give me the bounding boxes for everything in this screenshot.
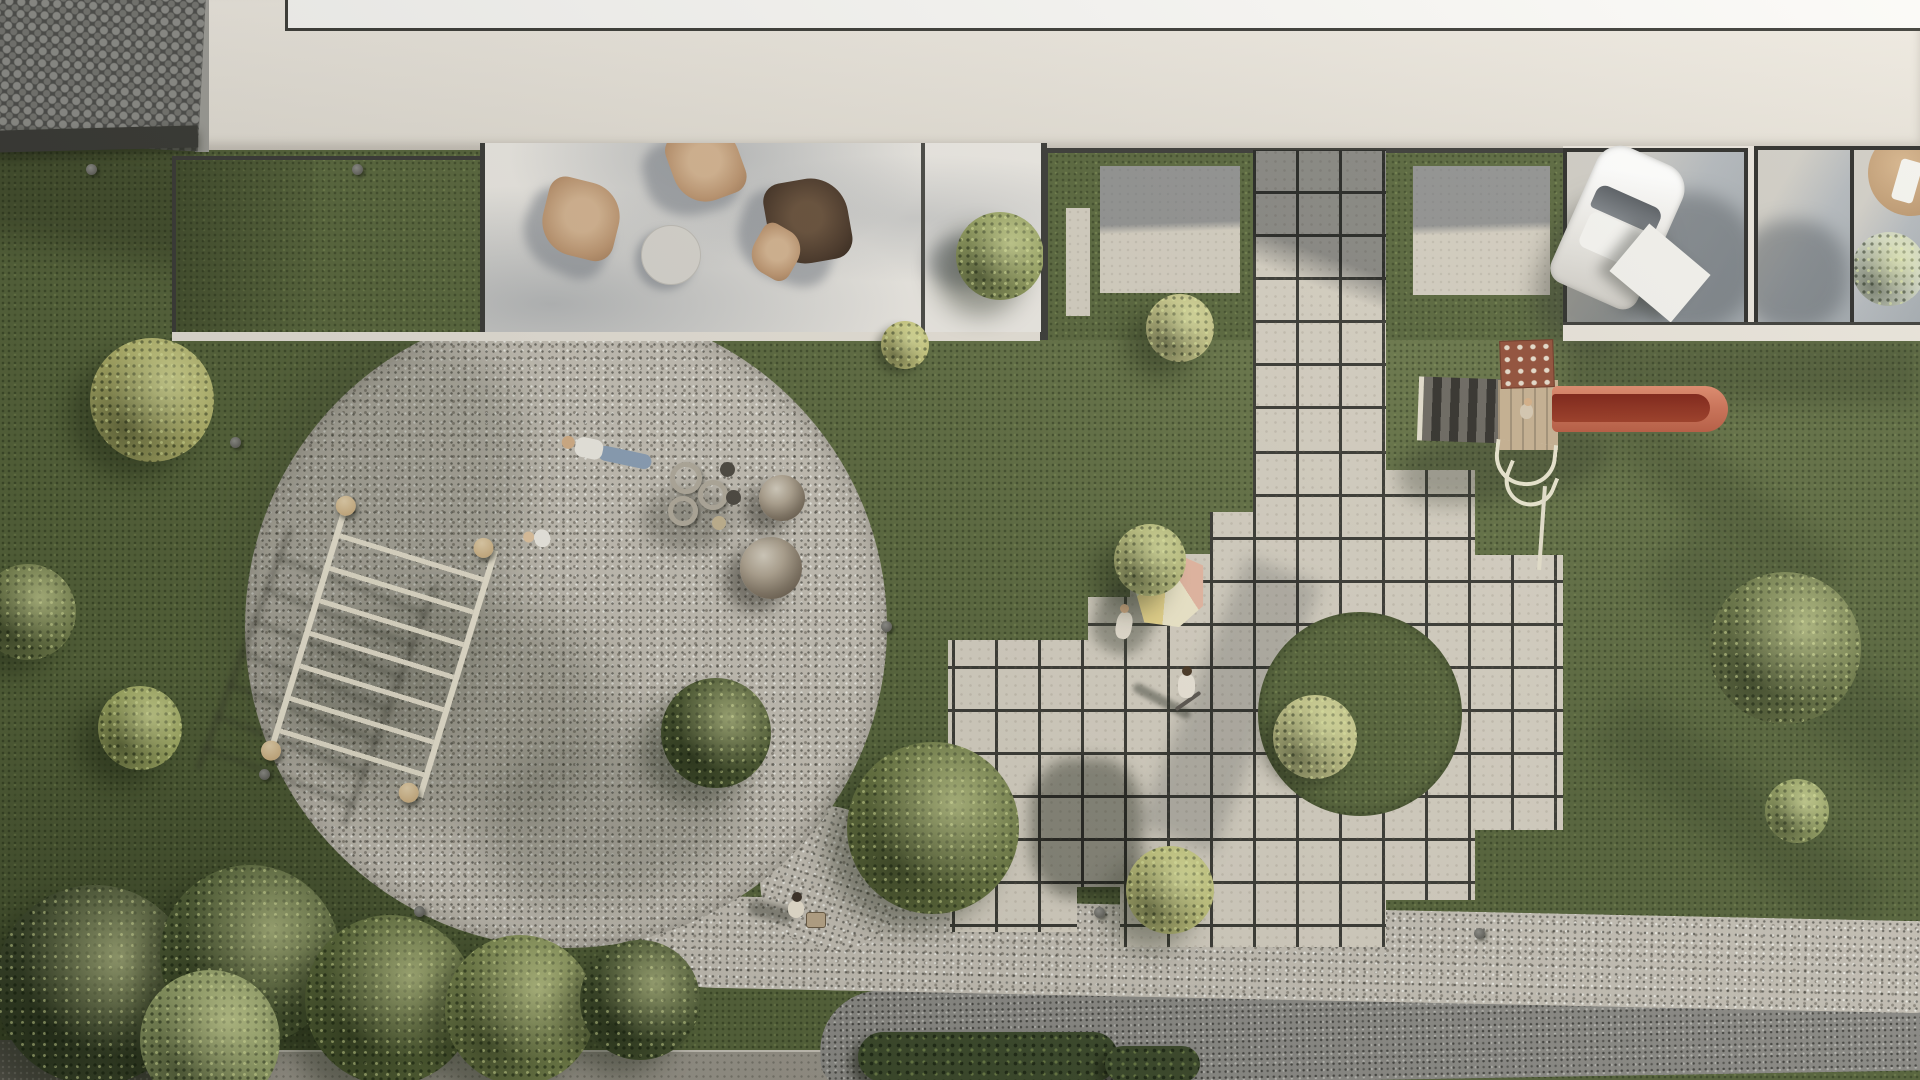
spring-seat (726, 490, 741, 505)
bollard-light (881, 621, 892, 632)
person-torso (1178, 674, 1195, 698)
wooden-ramp (1417, 376, 1511, 443)
person-torso (573, 436, 605, 461)
concrete-pad (1100, 166, 1240, 293)
spring-ring (698, 480, 728, 510)
hedge-row (1105, 1046, 1200, 1080)
tree (445, 935, 595, 1080)
bush (1114, 524, 1186, 596)
shrub (1709, 572, 1861, 724)
hedge-row (858, 1032, 1118, 1080)
slide-child (1516, 396, 1538, 422)
play-sphere-large (740, 537, 802, 599)
spring-seat (720, 462, 735, 477)
bush (98, 686, 182, 770)
terrace-mullion (921, 143, 925, 332)
scooter-kid (1160, 660, 1220, 726)
skylight-panel (1754, 146, 1854, 340)
stroller-person (770, 892, 830, 938)
tree (90, 338, 214, 462)
person-head (522, 530, 536, 544)
bollard-light (86, 164, 97, 175)
slide-tower (1390, 330, 1750, 590)
tree (580, 940, 700, 1060)
climbing-wall (1499, 339, 1555, 389)
skylight-panel (1850, 146, 1920, 340)
slide-channel (1552, 394, 1710, 422)
spring-ring (668, 496, 698, 526)
concrete-pad (1066, 208, 1090, 316)
bollard-light (414, 906, 425, 917)
patio-bush (1852, 232, 1920, 306)
bollard-light (1094, 907, 1105, 918)
person-torso (788, 900, 804, 918)
plant (881, 321, 929, 369)
tree (661, 678, 771, 788)
island-bush (1273, 695, 1357, 779)
lawn-patio (172, 156, 486, 340)
courtyard-aerial-rendering (0, 0, 1920, 1080)
person-head (1120, 604, 1129, 613)
plaza-teen (1106, 600, 1146, 656)
spring-riders (668, 460, 752, 546)
lawn-patio-shadow (176, 160, 314, 336)
bollard-light (1474, 928, 1485, 939)
bush (1126, 846, 1214, 934)
play-sphere-small (759, 475, 805, 521)
person-torso (532, 527, 553, 549)
glass-shadow (1754, 220, 1848, 330)
bush (1765, 779, 1829, 843)
person-legs (597, 445, 653, 471)
bollard-light (230, 437, 241, 448)
spring-seat (712, 516, 726, 530)
person-torso (1114, 611, 1134, 640)
person-head (792, 892, 802, 902)
building-roof-upper (285, 0, 1920, 31)
tile-walkway (1253, 148, 1386, 450)
person-head (1182, 666, 1192, 676)
person-head (1524, 398, 1532, 406)
bollard-light (259, 769, 270, 780)
terrace-tree (956, 212, 1044, 300)
concrete-pad (1413, 166, 1550, 295)
bollard-light (352, 164, 363, 175)
bush (1146, 294, 1214, 362)
spring-ring (670, 462, 702, 494)
slide (1552, 386, 1728, 432)
tree (847, 742, 1019, 914)
coffee-table (641, 225, 701, 285)
person-torso (1520, 404, 1533, 419)
toy-cart (806, 912, 826, 928)
